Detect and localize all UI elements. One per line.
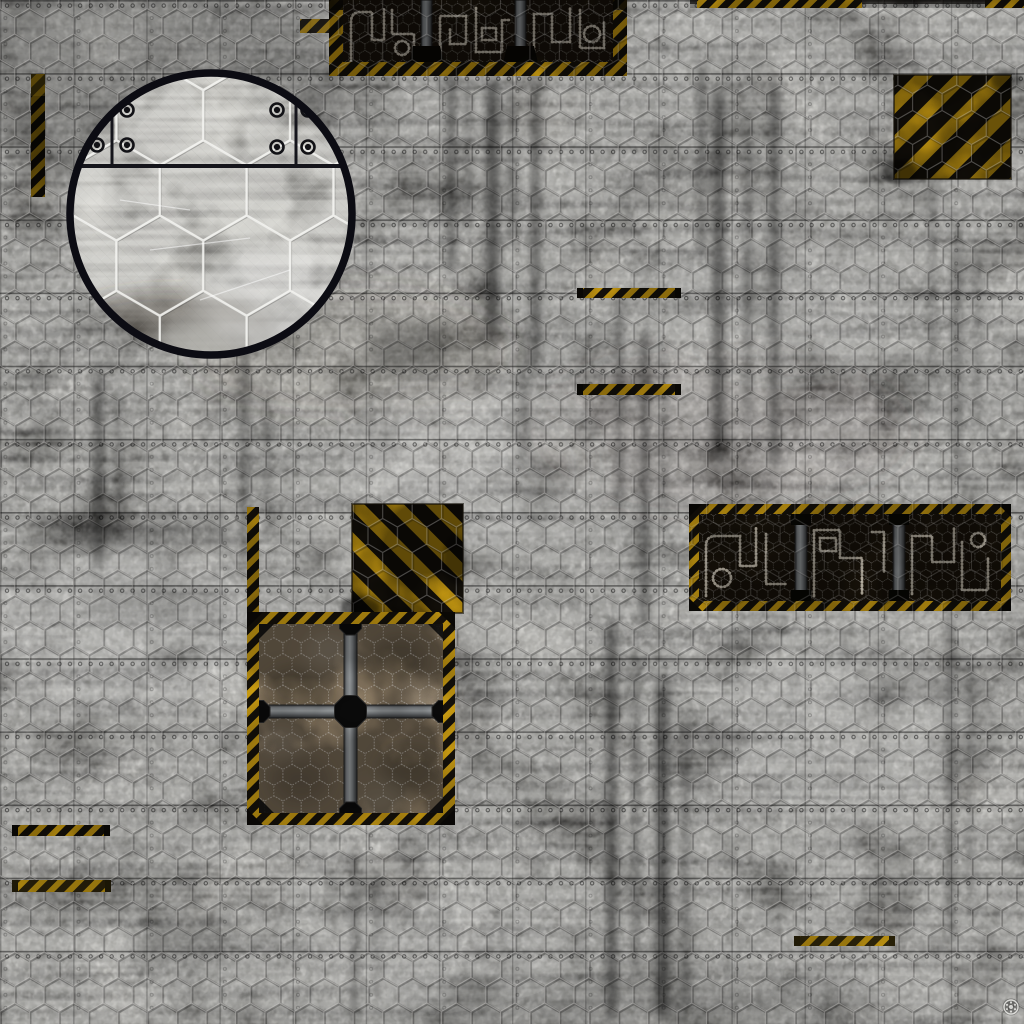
hazard-strip-center-upper — [577, 288, 681, 298]
center-hazard-square — [340, 504, 467, 620]
top-right-hazard-square — [881, 70, 1022, 184]
mat-artwork — [0, 0, 1024, 1024]
battle-mat — [0, 0, 1024, 1024]
hazard-strip-center-lower — [577, 384, 681, 395]
top-edge-hazard-strips — [690, 0, 1024, 8]
maker-logo-mark — [1003, 999, 1020, 1016]
bottom-left-hazard-strip-2 — [12, 880, 111, 892]
top-left-hazard-nub-grime — [300, 19, 330, 33]
left-hazard-strip — [31, 74, 45, 197]
bottom-left-hazard-strip-1 — [12, 825, 110, 836]
cargo-hatch-panel — [247, 612, 455, 825]
bottom-right-hazard-strip — [794, 936, 895, 946]
hatch-left-hazard-border — [247, 507, 259, 612]
right-conduit-panel — [689, 504, 1011, 611]
top-conduit-panel — [329, 0, 627, 76]
